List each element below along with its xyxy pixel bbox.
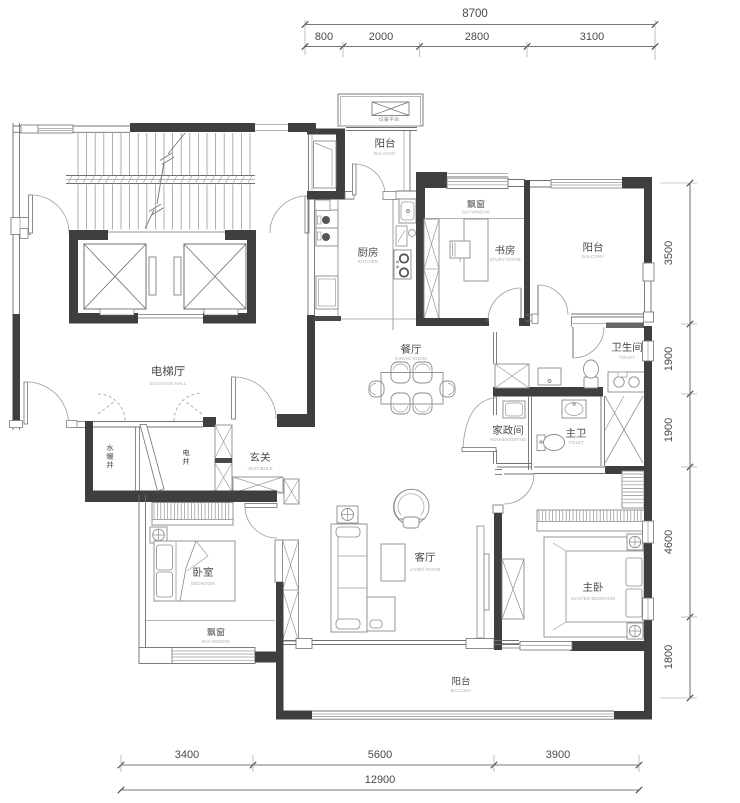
svg-text:DINING ROOM: DINING ROOM — [395, 356, 427, 361]
svg-text:TOILET: TOILET — [619, 355, 635, 360]
svg-text:800: 800 — [315, 31, 333, 43]
svg-text:5600: 5600 — [368, 749, 392, 761]
svg-text:ELEVATOR HALL: ELEVATOR HALL — [150, 381, 187, 386]
svg-text:8700: 8700 — [462, 8, 488, 20]
svg-text:1900: 1900 — [663, 418, 675, 442]
svg-text:BEDROOM: BEDROOM — [191, 581, 215, 586]
svg-text:2000: 2000 — [369, 31, 393, 43]
svg-text:KITCHEN: KITCHEN — [358, 259, 378, 264]
svg-text:BALCONY: BALCONY — [374, 151, 396, 156]
svg-text:BALCONY: BALCONY — [451, 688, 472, 693]
svg-text:MASTER BEDROOM: MASTER BEDROOM — [571, 596, 615, 601]
svg-text:3100: 3100 — [580, 31, 604, 43]
svg-text:1800: 1800 — [663, 645, 675, 669]
svg-text:BALCONY: BALCONY — [582, 254, 604, 259]
svg-text:3900: 3900 — [546, 749, 570, 761]
svg-text:BAY WINDOW: BAY WINDOW — [202, 639, 230, 644]
svg-text:3400: 3400 — [175, 749, 199, 761]
svg-text:2800: 2800 — [465, 31, 489, 43]
svg-text:4600: 4600 — [663, 530, 675, 554]
svg-text:BAY WINDOW: BAY WINDOW — [462, 210, 490, 215]
svg-text:LIVING ROOM: LIVING ROOM — [410, 567, 441, 572]
svg-text:HOUSEKEEPING: HOUSEKEEPING — [490, 437, 527, 442]
svg-text:3500: 3500 — [663, 241, 675, 265]
svg-text:12900: 12900 — [365, 774, 396, 786]
svg-text:STUDY ROOM: STUDY ROOM — [489, 257, 520, 262]
svg-text:TOILET: TOILET — [568, 440, 584, 445]
svg-text:1900: 1900 — [663, 347, 675, 371]
svg-text:VESTIBULE: VESTIBULE — [247, 466, 272, 471]
